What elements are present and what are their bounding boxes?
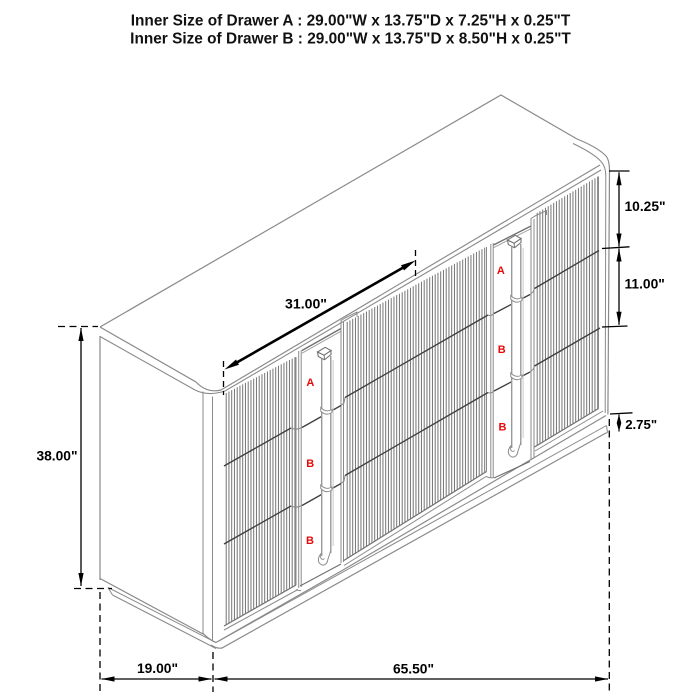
svg-text:B: B (306, 535, 314, 547)
svg-text:Inner Size of Drawer A : 29.00: Inner Size of Drawer A : 29.00"W x 13.75… (131, 13, 571, 30)
svg-text:65.50": 65.50" (393, 661, 434, 676)
svg-text:2.75": 2.75" (625, 417, 657, 432)
svg-text:11.00": 11.00" (625, 277, 665, 292)
svg-text:B: B (306, 458, 314, 470)
svg-text:19.00": 19.00" (137, 661, 178, 676)
svg-text:A: A (497, 265, 505, 277)
svg-text:10.25": 10.25" (625, 199, 666, 214)
svg-text:B: B (499, 422, 507, 434)
svg-text:31.00": 31.00" (285, 296, 327, 312)
svg-text:Inner Size of Drawer B : 29.00: Inner Size of Drawer B : 29.00"W x 13.75… (130, 31, 571, 48)
svg-text:B: B (498, 344, 506, 356)
svg-text:A: A (306, 377, 314, 389)
svg-text:38.00": 38.00" (36, 449, 77, 464)
